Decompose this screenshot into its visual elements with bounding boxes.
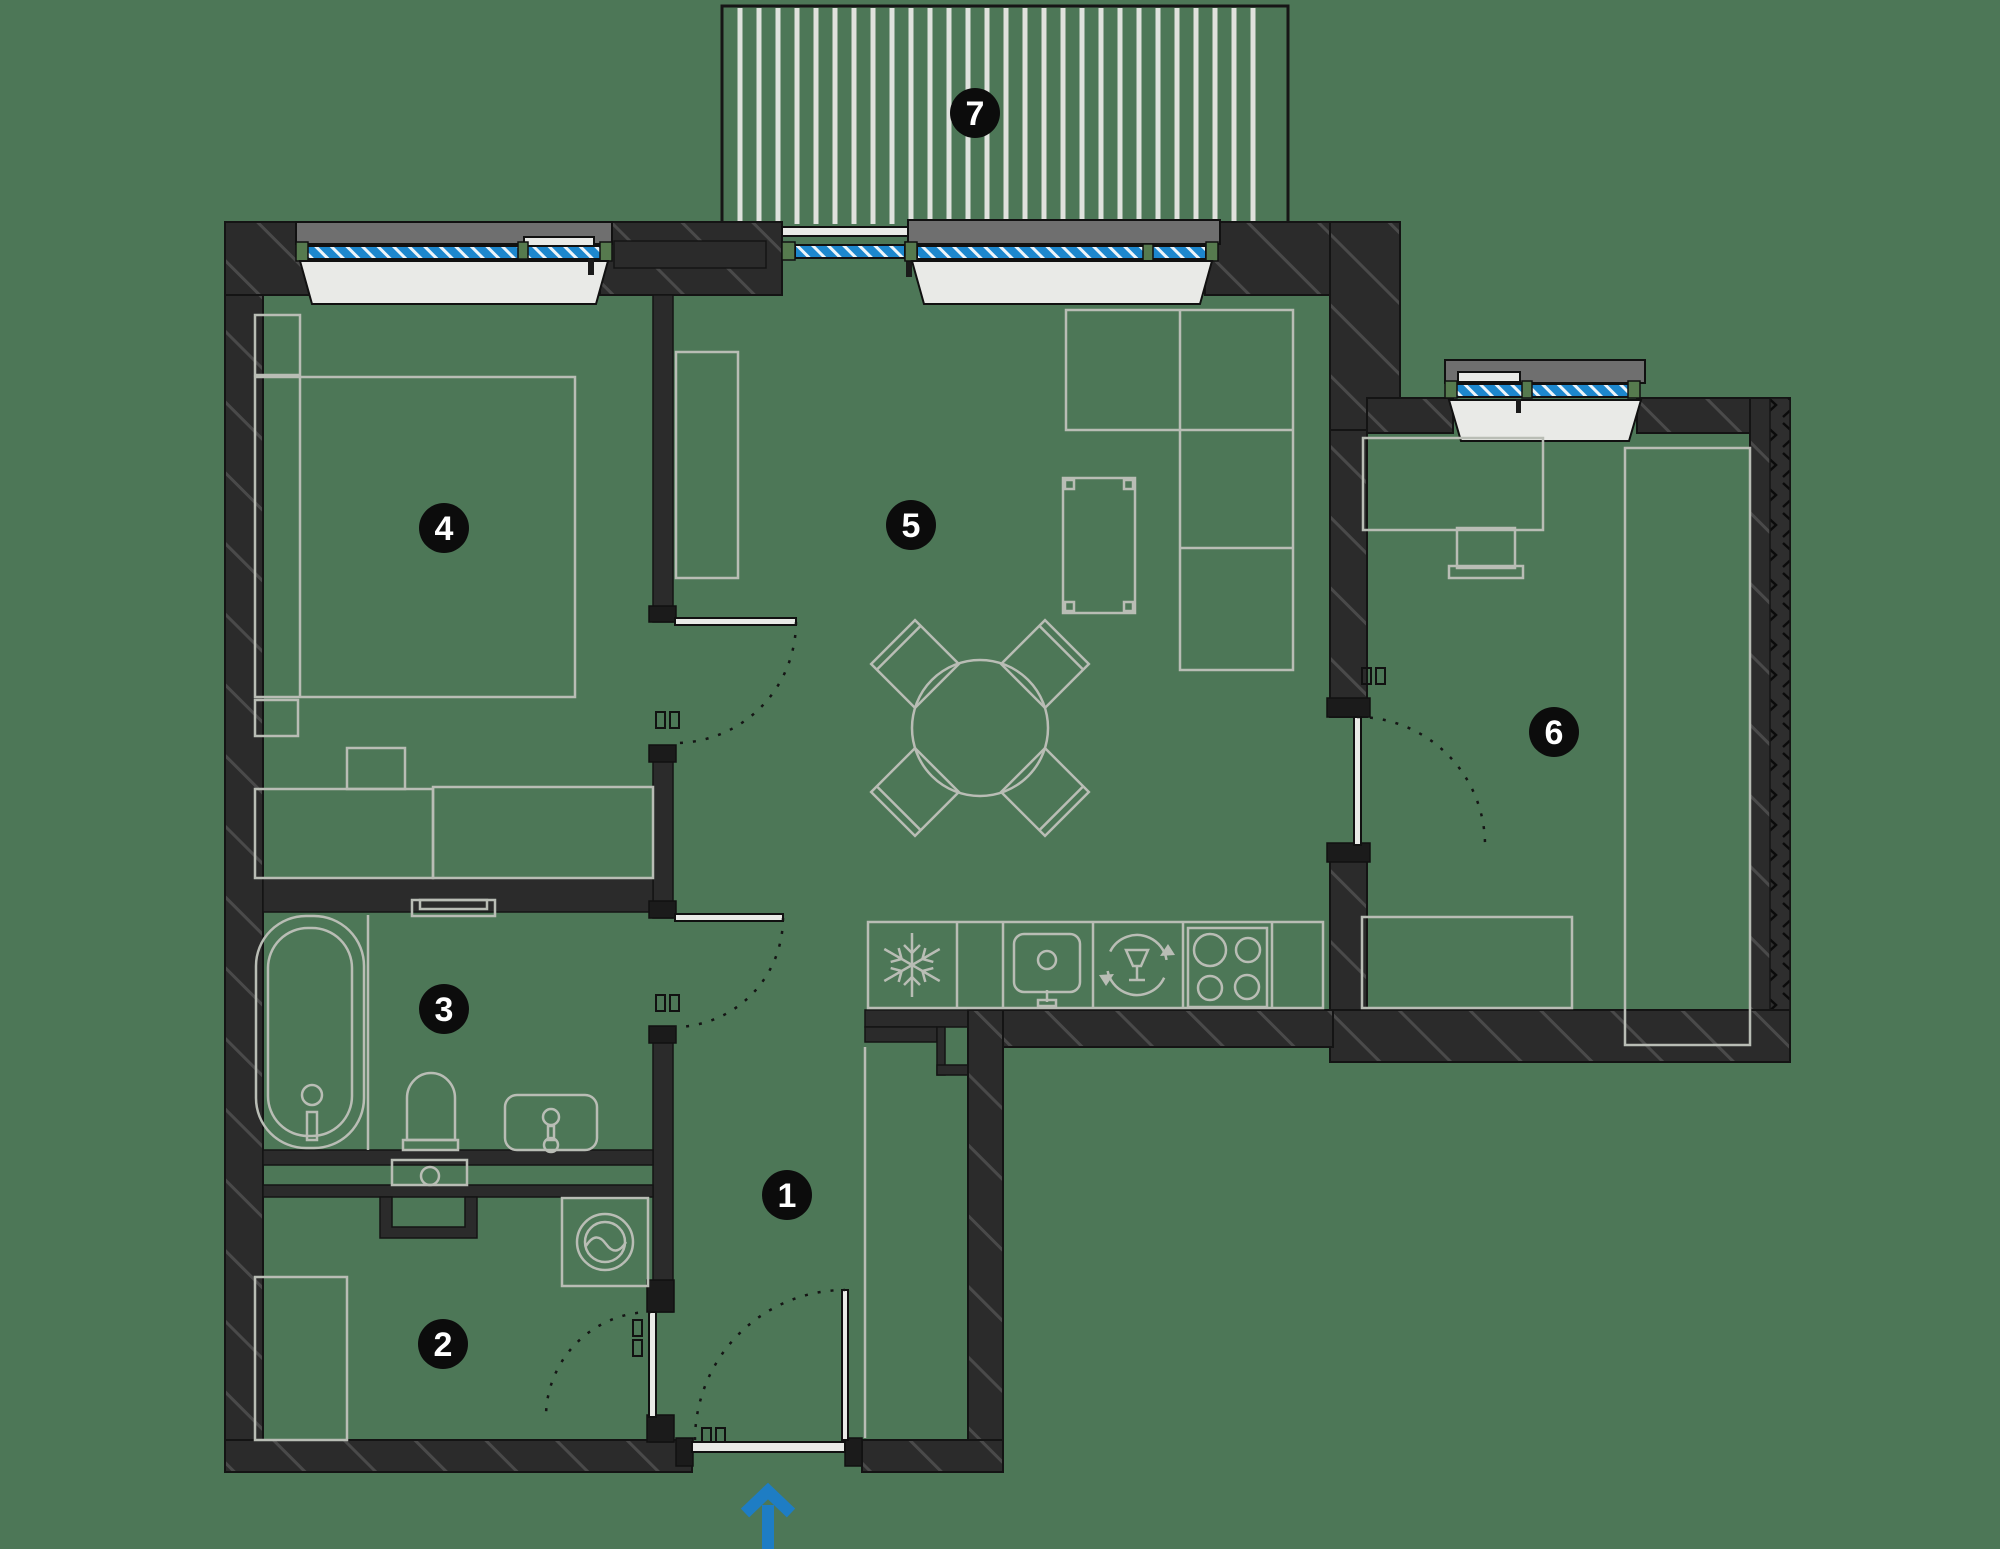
wall-hallway-shaft-bottom bbox=[937, 1065, 970, 1075]
floor-plan-canvas: 1234567 bbox=[0, 0, 2000, 1549]
svg-text:7: 7 bbox=[966, 95, 985, 133]
svg-text:5: 5 bbox=[902, 507, 921, 545]
wall-bathroom-storage-upper bbox=[263, 1150, 653, 1165]
svg-text:2: 2 bbox=[434, 1326, 453, 1364]
room-label-storage-room: 2 bbox=[418, 1319, 468, 1369]
door-handle-tick bbox=[906, 261, 912, 277]
svg-text:3: 3 bbox=[435, 991, 454, 1029]
wall-bedroom2-bottom bbox=[1330, 1010, 1790, 1062]
room-label-bedroom-2: 6 bbox=[1529, 707, 1579, 757]
svg-text:1: 1 bbox=[778, 1177, 797, 1215]
wall-bedroom2-top-right bbox=[1637, 398, 1753, 433]
room-label-hallway: 1 bbox=[762, 1170, 812, 1220]
svg-text:6: 6 bbox=[1545, 714, 1564, 752]
wall-bedroom-bathroom bbox=[263, 878, 653, 912]
wall-partition-upper bbox=[653, 295, 673, 622]
wall-hallway-shaft-bar bbox=[865, 1027, 937, 1042]
wall-top-segment-c bbox=[1205, 222, 1330, 295]
room-label-bathroom: 3 bbox=[419, 984, 469, 1034]
wall-bedroom2-top-left bbox=[1367, 398, 1453, 433]
apartment-floor-plan: 1234567 bbox=[0, 0, 2000, 1549]
wall-kitchen-bottom bbox=[1003, 1010, 1333, 1047]
room-label-bedroom: 4 bbox=[419, 503, 469, 553]
window-handle-tick bbox=[1516, 399, 1521, 413]
wall-left-exterior bbox=[225, 222, 263, 1472]
room-label-balcony: 7 bbox=[950, 88, 1000, 138]
window-bedroom bbox=[296, 222, 612, 304]
wall-partition-lower bbox=[653, 1028, 673, 1312]
room-label-living-room-kitchen: 5 bbox=[886, 500, 936, 550]
wall-bottom-right bbox=[862, 1440, 1003, 1472]
wall-hallway-right bbox=[968, 1010, 1003, 1472]
window-handle-tick bbox=[588, 259, 594, 275]
window-living-room bbox=[905, 220, 1220, 304]
wall-top-detail-panel bbox=[614, 241, 766, 268]
wall-bottom-left bbox=[225, 1440, 692, 1472]
wall-bathroom-storage-lower bbox=[263, 1185, 653, 1197]
svg-text:4: 4 bbox=[435, 510, 454, 548]
wall-partition-middle bbox=[653, 747, 673, 918]
window-bedroom-2 bbox=[1445, 360, 1645, 441]
wall-insulation-layer bbox=[1770, 398, 1790, 1062]
